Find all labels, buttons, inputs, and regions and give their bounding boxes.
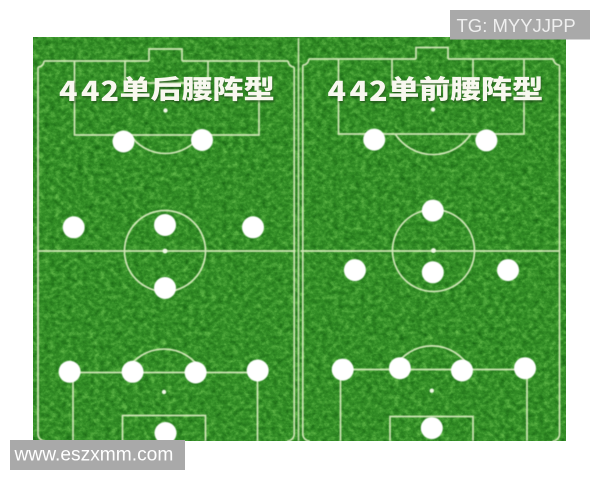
svg-text:www.eszxmm.com: www.eszxmm.com	[14, 445, 174, 466]
svg-text:TG: MYYJJPP: TG: MYYJJPP	[457, 15, 576, 36]
